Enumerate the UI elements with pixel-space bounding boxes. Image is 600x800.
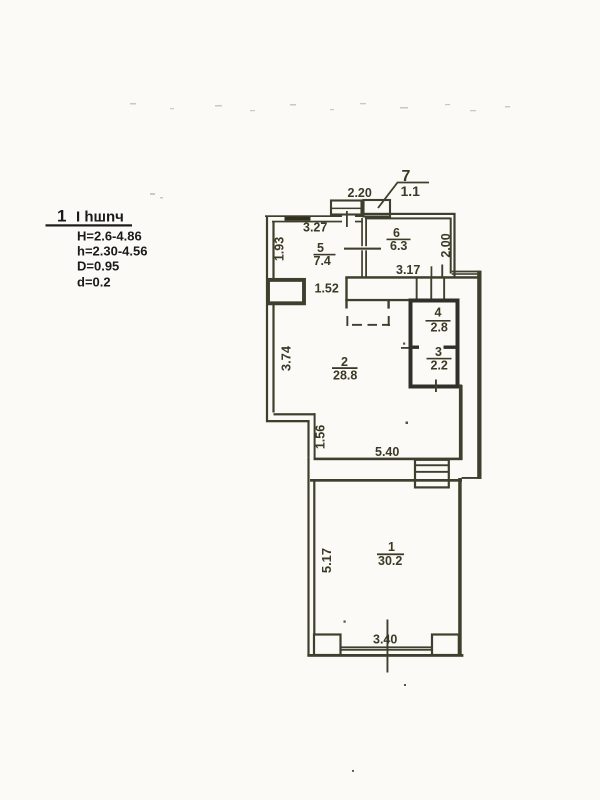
svg-text:4: 4 (435, 306, 442, 320)
svg-text:1.93: 1.93 (273, 237, 287, 261)
svg-text:2.00: 2.00 (439, 233, 453, 257)
svg-text:1: 1 (57, 207, 66, 226)
svg-text:3.17: 3.17 (396, 263, 420, 277)
svg-text:3.74: 3.74 (278, 345, 293, 371)
svg-text:1.1: 1.1 (401, 183, 421, 199)
svg-text:6.3: 6.3 (390, 239, 407, 253)
svg-text:d=0.2: d=0.2 (77, 275, 111, 290)
svg-text:28.8: 28.8 (333, 369, 357, 383)
svg-text:2: 2 (341, 355, 348, 369)
svg-text:5.17: 5.17 (319, 548, 334, 573)
svg-text:3: 3 (435, 345, 442, 359)
svg-text:h=2.30-4.56: h=2.30-4.56 (77, 244, 147, 259)
svg-text:2.8: 2.8 (431, 321, 448, 335)
svg-text:1.52: 1.52 (315, 282, 339, 296)
svg-text:2.20: 2.20 (348, 186, 372, 200)
svg-text:1: 1 (388, 540, 395, 554)
svg-text:5: 5 (317, 241, 324, 255)
svg-text:30.2: 30.2 (378, 554, 402, 568)
svg-text:2.2: 2.2 (431, 358, 448, 372)
svg-text:H=2.6-4.86: H=2.6-4.86 (77, 229, 142, 244)
svg-text:I hшnч: I hшnч (76, 209, 124, 226)
svg-text:7.4: 7.4 (314, 254, 331, 268)
svg-text:6: 6 (393, 226, 400, 240)
svg-text:5.40: 5.40 (375, 445, 399, 459)
svg-text:D=0.95: D=0.95 (77, 259, 119, 274)
svg-text:3.40: 3.40 (373, 633, 397, 647)
svg-text:3.27: 3.27 (303, 221, 327, 235)
svg-text:1.56: 1.56 (314, 425, 328, 449)
